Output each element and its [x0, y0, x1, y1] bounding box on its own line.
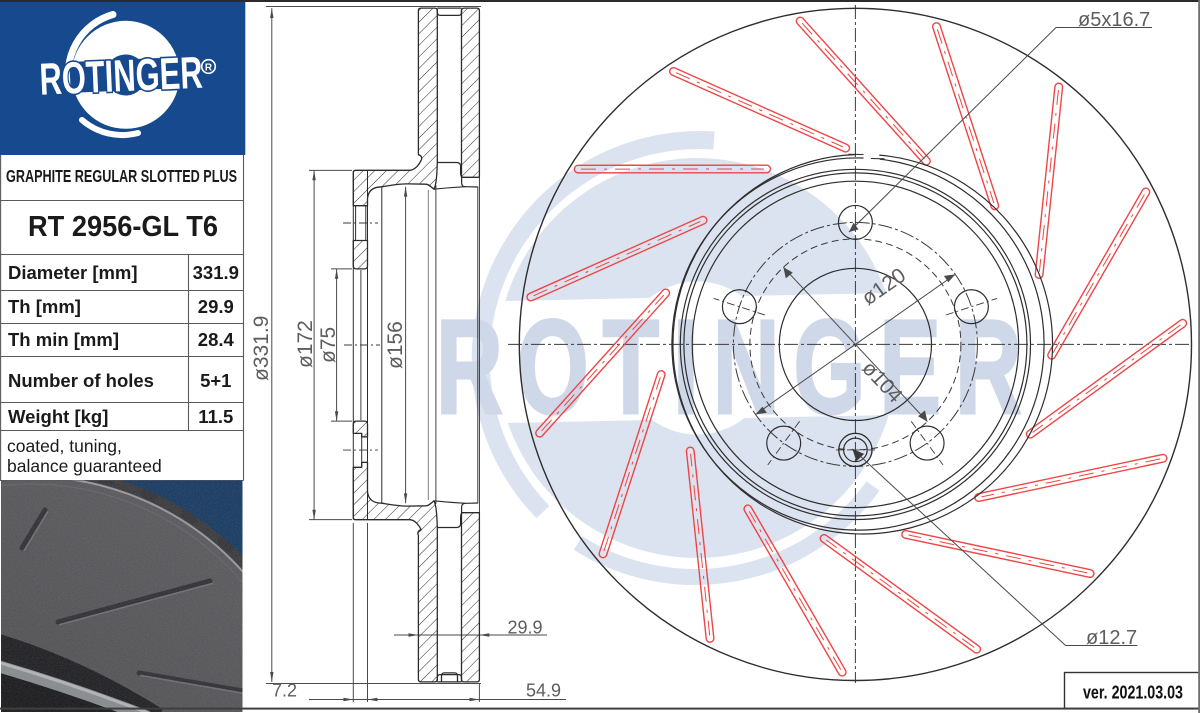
svg-text:5+1: 5+1	[200, 370, 231, 391]
svg-text:RT 2956-GL T6: RT 2956-GL T6	[28, 211, 218, 243]
svg-text:29.9: 29.9	[198, 296, 234, 317]
svg-text:7.2: 7.2	[272, 681, 297, 701]
svg-text:R: R	[205, 63, 213, 74]
svg-text:Weight [kg]: Weight [kg]	[8, 406, 108, 427]
svg-text:ROTINGER: ROTINGER	[436, 293, 1022, 442]
svg-text:Th [mm]: Th [mm]	[8, 296, 81, 317]
svg-text:GRAPHITE REGULAR SLOTTED PLUS: GRAPHITE REGULAR SLOTTED PLUS	[6, 166, 237, 186]
svg-text:331.9: 331.9	[193, 262, 239, 283]
svg-text:29.9: 29.9	[508, 618, 543, 638]
svg-text:balance guaranteed: balance guaranteed	[7, 456, 162, 476]
svg-text:ø5x16.7: ø5x16.7	[1078, 9, 1150, 31]
svg-text:ø75: ø75	[317, 327, 340, 363]
svg-text:28.4: 28.4	[198, 329, 235, 350]
svg-text:Number of holes: Number of holes	[8, 370, 154, 391]
svg-text:ver. 2021.03.03: ver. 2021.03.03	[1083, 683, 1183, 703]
svg-text:11.5: 11.5	[198, 406, 233, 427]
svg-text:ø172: ø172	[294, 320, 317, 368]
svg-text:coated, tuning,: coated, tuning,	[7, 436, 122, 456]
svg-text:ø331.9: ø331.9	[250, 316, 273, 381]
svg-text:ø12.7: ø12.7	[1086, 627, 1137, 649]
svg-text:54.9: 54.9	[526, 681, 561, 701]
svg-text:ROTINGER: ROTINGER	[38, 47, 203, 105]
svg-text:Diameter [mm]: Diameter [mm]	[8, 262, 138, 283]
svg-text:Th min [mm]: Th min [mm]	[8, 329, 119, 350]
svg-text:ø156: ø156	[384, 321, 407, 369]
